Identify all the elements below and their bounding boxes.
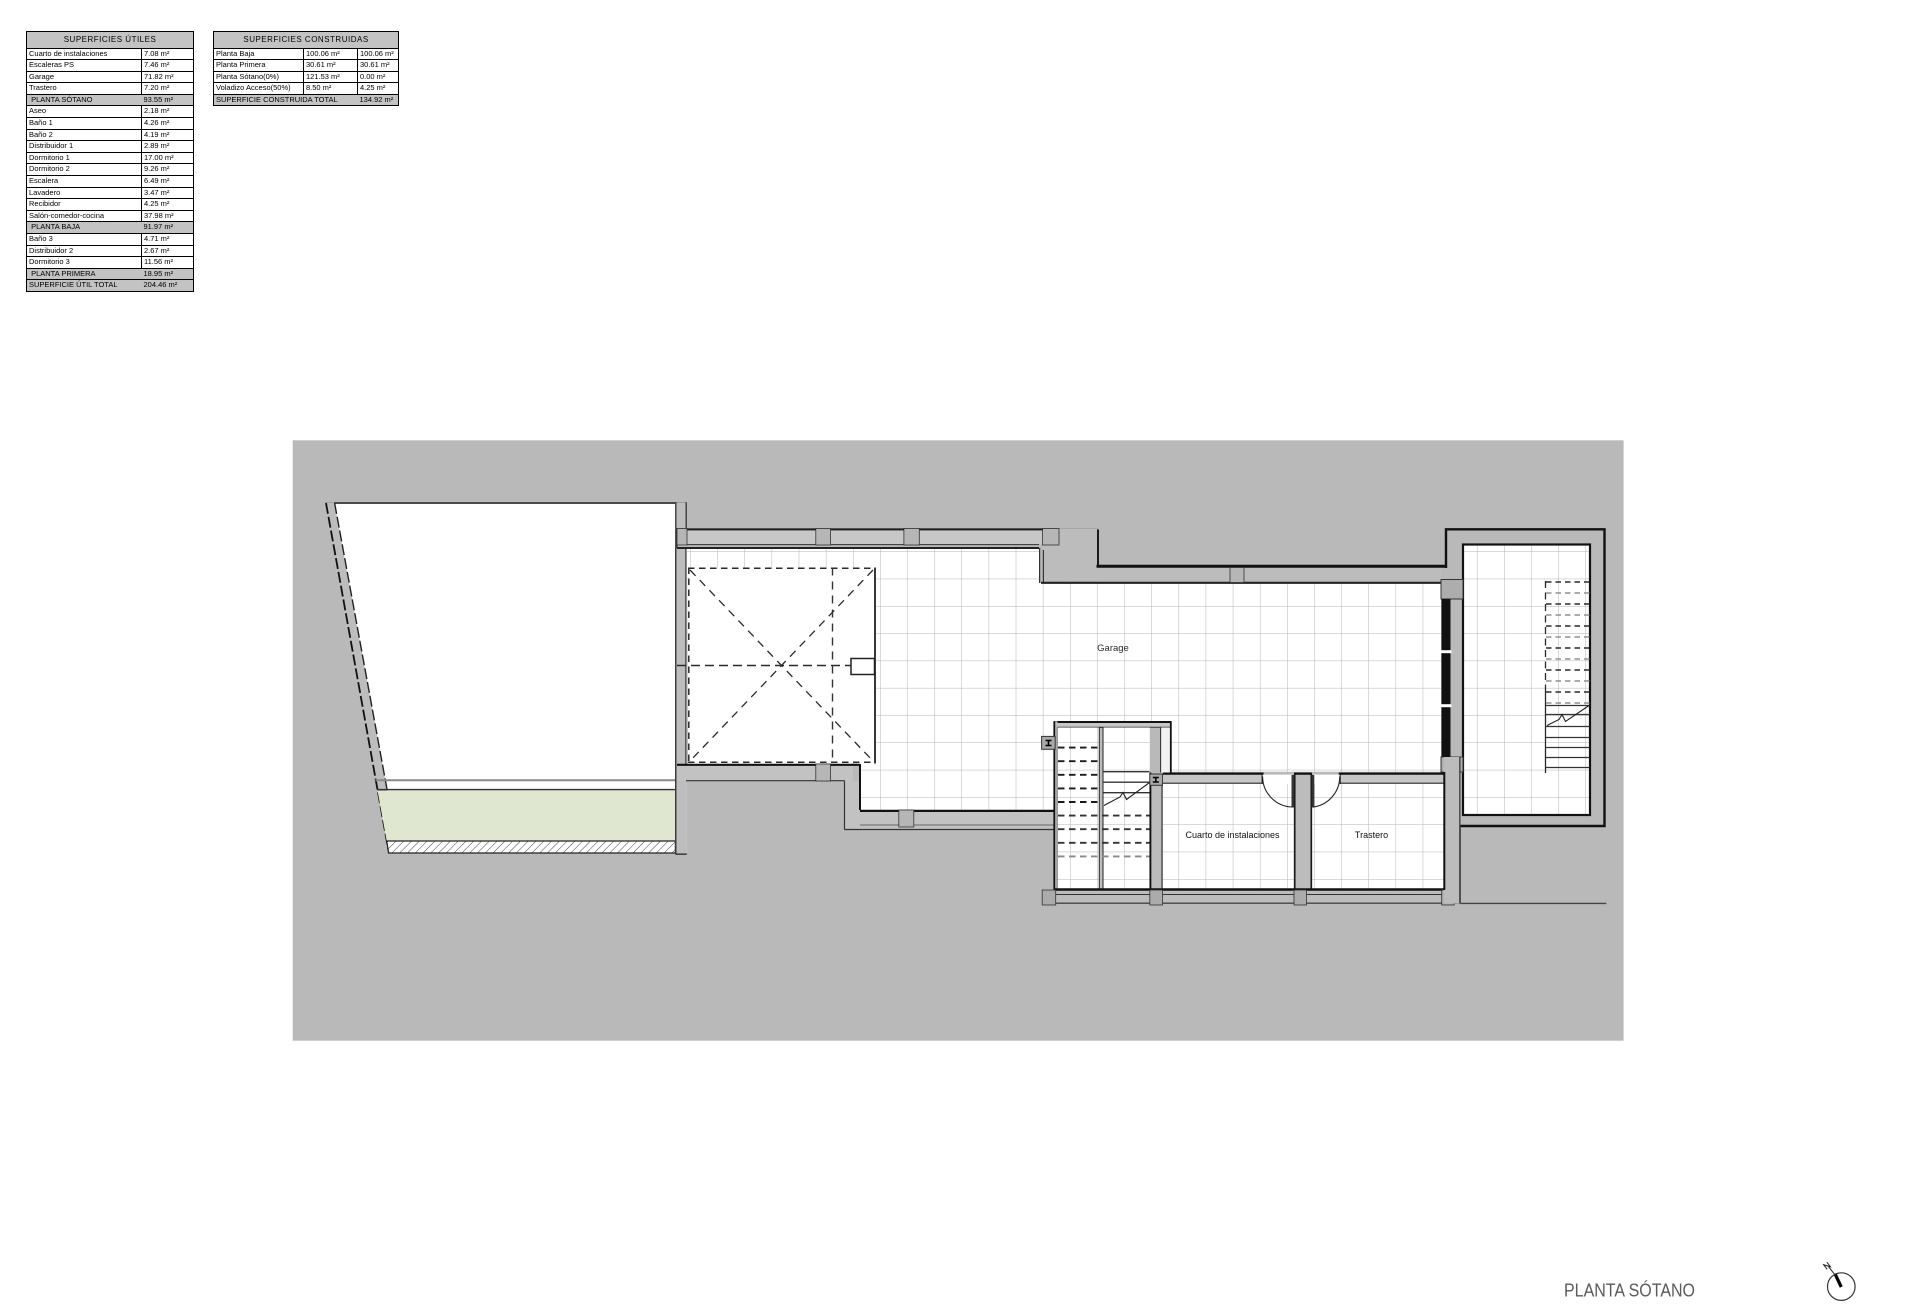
svg-text:Garage: Garage (1097, 643, 1129, 654)
svg-text:Trastero: Trastero (1355, 830, 1388, 840)
svg-text:PLANTA SÓTANO: PLANTA SÓTANO (1564, 1280, 1695, 1301)
svg-text:Cuarto de instalaciones: Cuarto de instalaciones (1185, 830, 1280, 840)
